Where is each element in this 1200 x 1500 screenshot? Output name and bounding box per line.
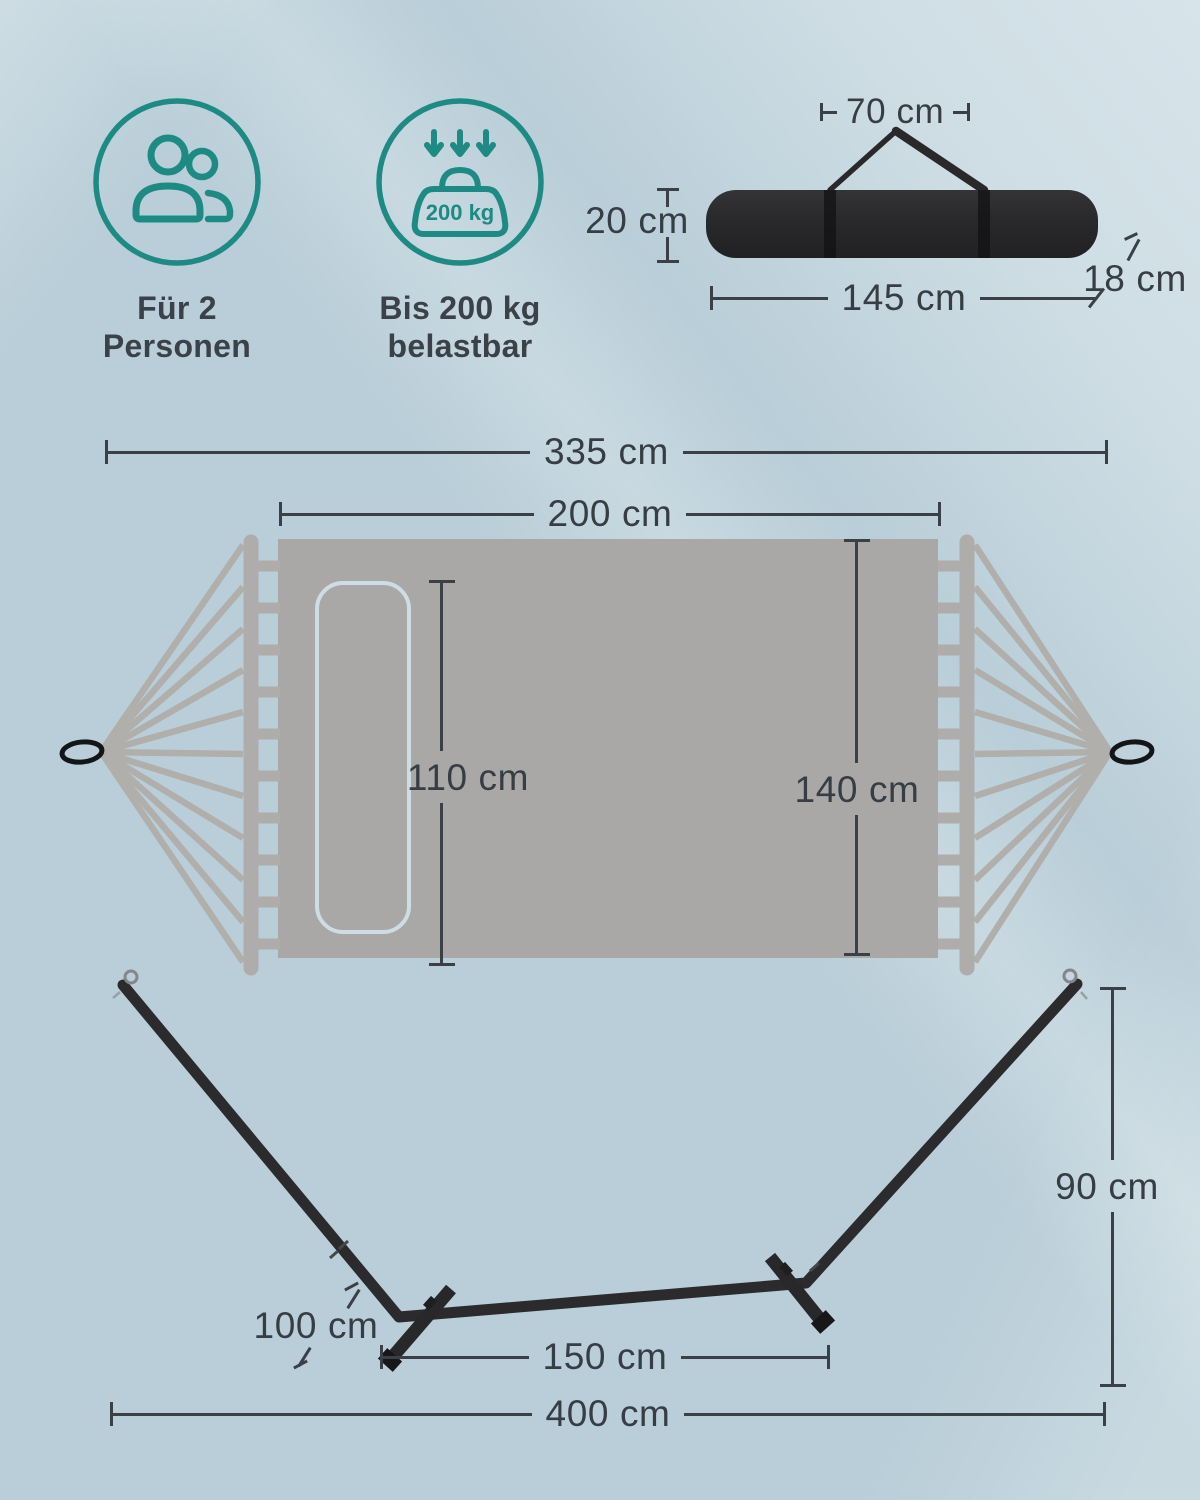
product-dimension-infographic: Für 2 Personen 200 kg Bis 200 kg belastb… (0, 0, 1200, 1500)
dim-line (855, 815, 858, 954)
dim-tick (1105, 440, 1108, 464)
dim-line (440, 582, 443, 751)
dim-line (1111, 1212, 1114, 1386)
dim-bag-length: 145 cm (710, 285, 1098, 311)
dim-line (666, 237, 669, 260)
hammock-left-suspension (55, 530, 280, 980)
dim-foot-length-label: 100 cm (241, 1305, 391, 1347)
dim-fabric-width-label: 140 cm (782, 769, 932, 811)
dim-cap (1100, 1384, 1126, 1387)
dim-line (686, 513, 938, 516)
dim-total-length: 335 cm (105, 439, 1108, 465)
hammock-stand (80, 950, 1140, 1400)
dim-line (282, 513, 534, 516)
carry-bag (706, 190, 1098, 258)
bag-strap-band (978, 190, 990, 258)
weight-badge: 200 kg (426, 200, 495, 225)
max-load-icon: 200 kg (372, 94, 548, 270)
dim-tick (938, 502, 941, 526)
dim-line (440, 803, 443, 964)
dim-bag-strap-label: 70 cm (837, 92, 953, 132)
dim-line (681, 1356, 827, 1359)
cords (101, 545, 243, 962)
dim-stand-length: 400 cm (110, 1401, 1106, 1427)
weight-handle-icon (442, 170, 478, 188)
dim-stand-length-label: 400 cm (532, 1393, 685, 1435)
dim-tick (967, 103, 970, 121)
dim-line (713, 297, 828, 300)
feature-two-persons: Für 2 Personen (87, 94, 267, 365)
cords (975, 545, 1110, 962)
dim-feet-distance-label: 150 cm (529, 1336, 682, 1378)
hook-icon (125, 971, 137, 983)
stand-frame (123, 984, 1077, 1317)
bag-handle (815, 124, 1000, 196)
dim-bag-length-label: 145 cm (828, 277, 981, 319)
dim-tick (827, 1345, 830, 1369)
dim-fabric-length-label: 200 cm (534, 493, 687, 535)
feature-max-load-caption: Bis 200 kg belastbar (370, 289, 550, 365)
dim-stand-height-label: 90 cm (1032, 1166, 1182, 1208)
hanging-ring-icon (61, 740, 103, 764)
dim-pillow-length-label: 110 cm (393, 757, 543, 799)
dim-line (683, 451, 1105, 454)
hanging-ring-icon (1111, 740, 1153, 764)
hook-icon (1064, 970, 1076, 982)
dim-line (666, 190, 669, 207)
dim-line (953, 111, 967, 114)
feature-two-persons-caption: Für 2 Personen (87, 289, 267, 365)
dim-line (383, 1356, 529, 1359)
two-persons-icon (89, 94, 265, 270)
dim-total-length-label: 335 cm (530, 431, 683, 473)
dim-bag-strap: 70 cm (820, 97, 986, 127)
dim-bag-depth-label: 18 cm (1060, 258, 1200, 300)
dim-line (855, 541, 858, 763)
dim-cap (657, 260, 679, 263)
feature-max-load: 200 kg Bis 200 kg belastbar (370, 94, 550, 365)
dim-feet-distance: 150 cm (380, 1344, 830, 1370)
dim-line (684, 1413, 1103, 1416)
dim-fabric-length: 200 cm (279, 501, 941, 527)
down-arrows-icon (427, 132, 493, 154)
dim-line (113, 1413, 532, 1416)
dim-line (108, 451, 530, 454)
dim-line (1111, 990, 1114, 1160)
hook-tail (1081, 992, 1087, 999)
hook-tail (113, 992, 120, 998)
hammock-right-suspension (920, 530, 1170, 980)
bag-strap-band (824, 190, 836, 258)
dim-line (823, 111, 837, 114)
dim-bag-height-label: 20 cm (572, 200, 702, 242)
dim-tick (1103, 1402, 1106, 1426)
pole-clip (330, 1251, 338, 1258)
